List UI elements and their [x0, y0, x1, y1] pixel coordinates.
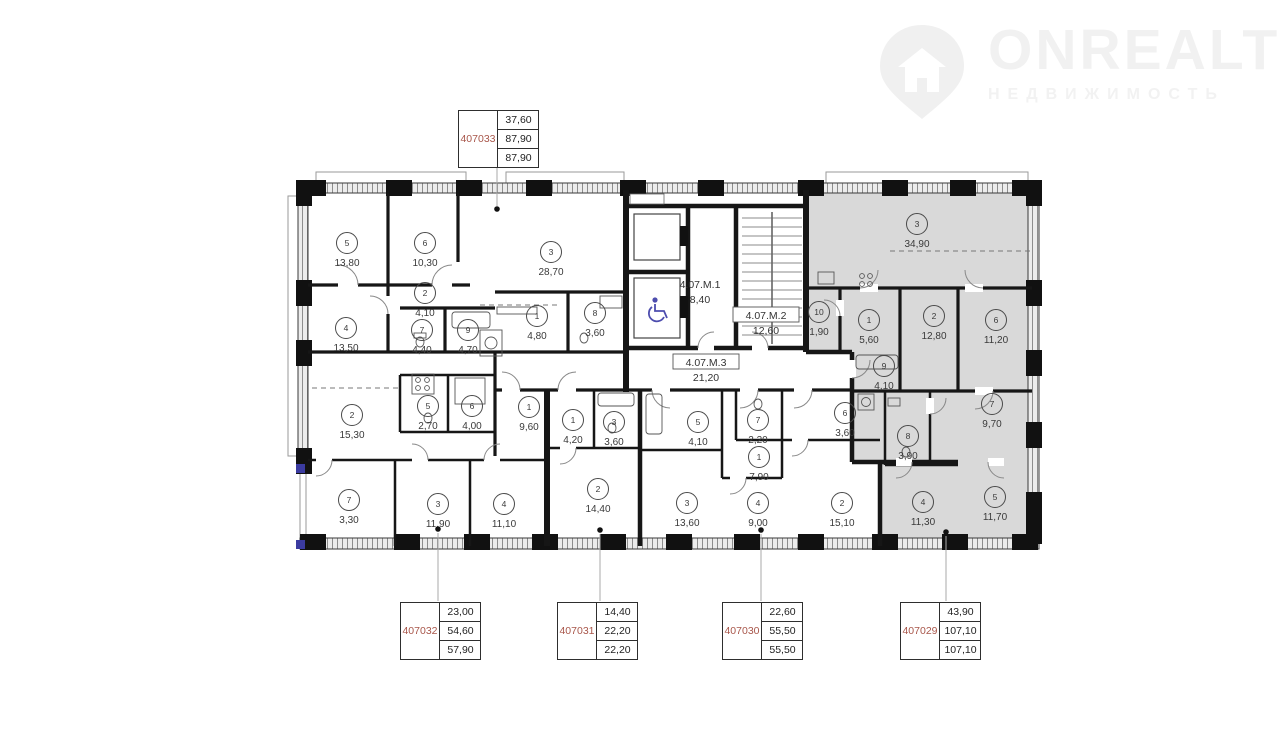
svg-text:4,10: 4,10 [874, 381, 894, 392]
svg-text:1: 1 [571, 415, 576, 425]
svg-text:7: 7 [756, 415, 761, 425]
svg-text:11,70: 11,70 [983, 512, 1008, 523]
unit-area-value: 14,40 [596, 603, 638, 621]
unit-area-value: 37,60 [497, 111, 539, 129]
room-label: 328,70 [538, 242, 563, 279]
svg-text:13,60: 13,60 [674, 518, 699, 529]
svg-text:9: 9 [466, 325, 471, 335]
svg-text:6: 6 [994, 315, 999, 325]
svg-text:8: 8 [906, 431, 911, 441]
svg-text:6: 6 [423, 238, 428, 248]
room-label: 313,60 [674, 493, 699, 530]
room-label: 215,10 [829, 493, 854, 530]
svg-text:34,90: 34,90 [904, 239, 929, 250]
svg-text:4,00: 4,00 [462, 421, 482, 432]
unit-area-value: 54,60 [439, 621, 481, 640]
svg-text:2: 2 [350, 410, 355, 420]
svg-text:4: 4 [502, 499, 507, 509]
svg-text:5: 5 [426, 401, 431, 411]
unit-info-box-407029: 40702943,90107,10107,10 [900, 602, 981, 660]
svg-text:2: 2 [840, 498, 845, 508]
room-label: 94,70 [458, 320, 479, 357]
svg-text:15,10: 15,10 [829, 518, 854, 529]
svg-text:5: 5 [345, 238, 350, 248]
room-label: 413,50 [333, 318, 358, 355]
room-label: 73,30 [339, 490, 360, 527]
unit-area-value: 107,10 [939, 621, 981, 640]
room-label: 72,20 [748, 410, 769, 447]
svg-text:11,30: 11,30 [911, 517, 936, 528]
svg-text:9,00: 9,00 [748, 518, 768, 529]
svg-text:8: 8 [593, 308, 598, 318]
svg-text:4.07.М.1: 4.07.М.1 [680, 279, 721, 291]
svg-text:5: 5 [993, 492, 998, 502]
unit-info-box-407030: 40703022,6055,5055,50 [722, 602, 803, 660]
unit-info-box-407033: 40703337,6087,9087,90 [458, 110, 539, 168]
svg-text:5: 5 [696, 417, 701, 427]
svg-text:4.07.М.3: 4.07.М.3 [686, 357, 727, 369]
svg-text:2,20: 2,20 [748, 435, 768, 446]
room-label: 54,10 [688, 412, 709, 449]
svg-text:10,30: 10,30 [412, 258, 437, 269]
svg-text:12,80: 12,80 [921, 331, 946, 342]
room-label: 411,10 [492, 494, 517, 531]
unit-id: 407029 [901, 603, 939, 659]
room-label: 14,80 [527, 306, 548, 343]
svg-text:3,90: 3,90 [898, 451, 918, 462]
unit-id: 407032 [401, 603, 439, 659]
room-label: 19,60 [519, 397, 540, 434]
svg-text:21,20: 21,20 [693, 372, 719, 384]
svg-text:4.07.М.2: 4.07.М.2 [746, 310, 787, 322]
svg-text:9,60: 9,60 [519, 422, 539, 433]
unit-id: 407030 [723, 603, 761, 659]
room-label: 17,90 [749, 447, 770, 484]
svg-text:11,20: 11,20 [984, 335, 1009, 346]
svg-text:12,60: 12,60 [753, 325, 779, 337]
room-label: 64,00 [462, 396, 483, 433]
svg-text:1: 1 [535, 311, 540, 321]
svg-text:3,30: 3,30 [339, 515, 359, 526]
unit-id: 407033 [459, 111, 497, 167]
room-label: 311,90 [426, 494, 451, 531]
svg-text:2,70: 2,70 [418, 421, 438, 432]
svg-text:7,90: 7,90 [749, 472, 769, 483]
unit-area-value: 87,90 [497, 129, 539, 148]
unit-area-value: 57,90 [439, 640, 481, 659]
svg-text:4: 4 [344, 323, 349, 333]
unit-area-value: 22,20 [596, 640, 638, 659]
svg-text:3,60: 3,60 [585, 328, 605, 339]
svg-text:28,70: 28,70 [538, 267, 563, 278]
svg-text:4,80: 4,80 [527, 331, 547, 342]
room-label: 513,80 [334, 233, 359, 270]
svg-text:4: 4 [921, 497, 926, 507]
svg-text:2: 2 [423, 288, 428, 298]
room-label: 33,60 [604, 412, 625, 449]
unit-area-value: 107,10 [939, 640, 981, 659]
svg-text:3,60: 3,60 [835, 428, 855, 439]
floor-plan-svg: 513,80610,30328,7024,10413,5074,4094,701… [0, 0, 1280, 746]
svg-text:4,20: 4,20 [563, 435, 583, 446]
room-label: 610,30 [412, 233, 437, 270]
svg-text:1: 1 [867, 315, 872, 325]
svg-text:13,80: 13,80 [334, 258, 359, 269]
room-label: 215,30 [339, 405, 364, 442]
svg-text:9: 9 [882, 361, 887, 371]
unit-id: 407031 [558, 603, 596, 659]
svg-text:3: 3 [612, 417, 617, 427]
svg-text:13,50: 13,50 [333, 343, 358, 354]
svg-text:2: 2 [932, 311, 937, 321]
room-label: 14,20 [563, 410, 584, 447]
room-label: 214,40 [585, 479, 610, 516]
svg-text:1,90: 1,90 [809, 327, 829, 338]
svg-text:10: 10 [814, 307, 824, 317]
room-label: 49,00 [748, 493, 769, 530]
svg-text:7: 7 [347, 495, 352, 505]
svg-text:3: 3 [685, 498, 690, 508]
unit-area-value: 22,20 [596, 621, 638, 640]
svg-text:5,60: 5,60 [859, 335, 879, 346]
svg-text:4,70: 4,70 [458, 345, 478, 356]
unit-area-value: 55,50 [761, 640, 803, 659]
svg-text:4,40: 4,40 [412, 345, 432, 356]
svg-text:15,30: 15,30 [339, 430, 364, 441]
svg-text:3: 3 [436, 499, 441, 509]
svg-text:3,60: 3,60 [604, 437, 624, 448]
svg-text:11,10: 11,10 [492, 519, 517, 530]
svg-text:1: 1 [527, 402, 532, 412]
svg-text:6: 6 [843, 408, 848, 418]
svg-text:3: 3 [915, 219, 920, 229]
elevator-icons [630, 194, 688, 338]
zone-label: 4.07.М.212,60 [733, 307, 799, 337]
zone-label: 4.07.М.321,20 [673, 354, 739, 384]
svg-text:4: 4 [756, 498, 761, 508]
svg-text:1: 1 [757, 452, 762, 462]
unit-area-value: 43,90 [939, 603, 981, 621]
svg-text:2: 2 [596, 484, 601, 494]
svg-text:4,10: 4,10 [688, 437, 708, 448]
svg-text:6: 6 [470, 401, 475, 411]
unit-area-value: 87,90 [497, 148, 539, 167]
svg-text:7: 7 [420, 325, 425, 335]
svg-text:3: 3 [549, 247, 554, 257]
unit-area-value: 23,00 [439, 603, 481, 621]
svg-text:7: 7 [990, 399, 995, 409]
svg-text:4,10: 4,10 [415, 308, 435, 319]
unit-info-box-407032: 40703223,0054,6057,90 [400, 602, 481, 660]
svg-text:9,70: 9,70 [982, 419, 1002, 430]
unit-area-value: 22,60 [761, 603, 803, 621]
svg-text:8,40: 8,40 [690, 294, 711, 306]
unit-info-box-407031: 40703114,4022,2022,20 [557, 602, 638, 660]
room-label: 52,70 [418, 396, 439, 433]
unit-area-value: 55,50 [761, 621, 803, 640]
floor-plan-page: ONREALT НЕДВИЖИМОСТЬ [0, 0, 1280, 746]
svg-text:14,40: 14,40 [585, 504, 610, 515]
